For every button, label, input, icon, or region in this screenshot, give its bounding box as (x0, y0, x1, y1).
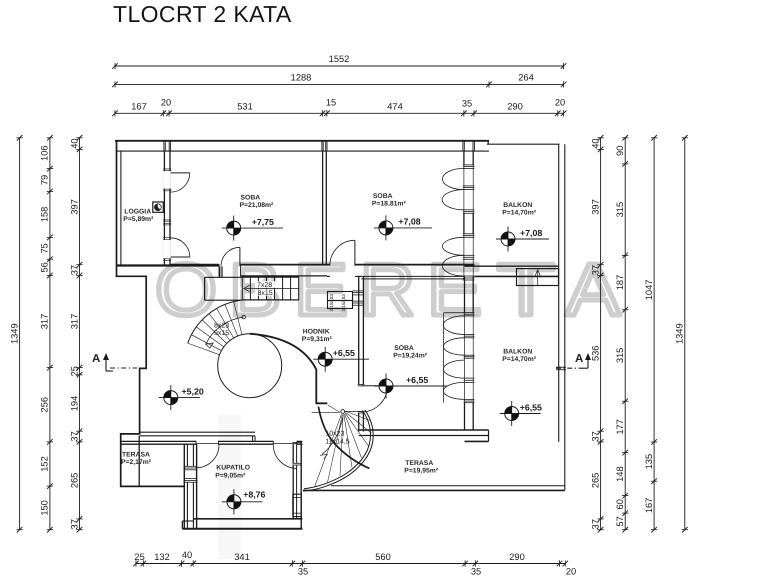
svg-text:+6,55: +6,55 (333, 348, 355, 358)
svg-text:560: 560 (375, 552, 391, 562)
svg-text:1288: 1288 (291, 73, 312, 83)
svg-text:167: 167 (131, 102, 147, 112)
svg-text:A: A (566, 248, 621, 331)
svg-text:290: 290 (509, 552, 525, 562)
svg-text:HODNIK: HODNIK (303, 329, 330, 336)
svg-text:T: T (497, 248, 555, 331)
svg-text:+7,75: +7,75 (252, 217, 274, 227)
svg-text:265: 265 (590, 473, 600, 489)
svg-text:11x14,5: 11x14,5 (325, 439, 349, 446)
svg-text:187: 187 (615, 275, 625, 291)
svg-text:P=19,95m²: P=19,95m² (404, 468, 439, 475)
svg-text:60: 60 (615, 499, 625, 509)
svg-text:3,15: 3,15 (329, 302, 334, 311)
svg-text:290: 290 (507, 102, 523, 112)
svg-text:264: 264 (518, 73, 534, 83)
svg-text:8x15: 8x15 (258, 290, 273, 297)
svg-text:37: 37 (69, 431, 79, 441)
svg-text:P=21,08m²: P=21,08m² (240, 202, 275, 209)
svg-text:341: 341 (234, 552, 250, 562)
svg-text:7x28: 7x28 (257, 282, 272, 289)
svg-text:+8,76: +8,76 (243, 490, 265, 500)
svg-text:25: 25 (69, 366, 79, 376)
svg-text:+7,08: +7,08 (520, 228, 542, 238)
svg-text:20: 20 (161, 98, 171, 108)
svg-text:40: 40 (69, 138, 79, 148)
svg-text:79: 79 (40, 175, 50, 185)
svg-text:75: 75 (40, 243, 50, 253)
svg-text:167: 167 (644, 498, 654, 514)
svg-text:8x23: 8x23 (214, 322, 229, 329)
svg-text:37: 37 (590, 519, 600, 529)
svg-text:474: 474 (387, 102, 403, 112)
svg-text:LOGGIA: LOGGIA (124, 209, 151, 216)
svg-text:20: 20 (566, 567, 576, 577)
svg-text:57: 57 (615, 516, 625, 526)
svg-text:194: 194 (69, 396, 79, 412)
svg-text:KUPATILO: KUPATILO (216, 465, 250, 472)
svg-text:P=9,05m²: P=9,05m² (215, 472, 246, 479)
svg-text:317: 317 (40, 314, 50, 330)
svg-text:BALKON: BALKON (503, 202, 532, 209)
svg-text:10x23: 10x23 (325, 431, 344, 438)
svg-text:256: 256 (40, 397, 50, 413)
svg-text:35: 35 (462, 99, 472, 109)
svg-text:P=9,31m²: P=9,31m² (302, 336, 333, 343)
svg-text:9x15: 9x15 (214, 330, 229, 337)
svg-text:+6,55: +6,55 (520, 402, 542, 412)
svg-text:3,15: 3,15 (341, 302, 346, 311)
svg-text:315: 315 (615, 348, 625, 364)
svg-text:148: 148 (615, 466, 625, 482)
svg-text:1552: 1552 (329, 54, 350, 64)
svg-text:315: 315 (615, 202, 625, 218)
svg-text:132: 132 (154, 552, 170, 562)
svg-text:R: R (360, 248, 415, 331)
svg-text:P=14,70m²: P=14,70m² (502, 356, 537, 363)
svg-text:TERASA: TERASA (122, 452, 150, 459)
svg-text:35: 35 (298, 567, 308, 577)
svg-text:A: A (92, 353, 100, 365)
svg-text:56: 56 (40, 262, 50, 272)
svg-text:20: 20 (555, 98, 565, 108)
svg-text:152: 152 (40, 456, 50, 472)
svg-text:SOBA: SOBA (394, 345, 414, 352)
svg-text:TERASA: TERASA (405, 460, 433, 467)
svg-text:135: 135 (644, 454, 654, 470)
svg-text:397: 397 (69, 199, 79, 215)
svg-text:2,83: 2,83 (329, 294, 334, 303)
svg-text:37: 37 (590, 431, 600, 441)
svg-text:E: E (294, 248, 348, 331)
svg-text:397: 397 (590, 199, 600, 215)
svg-text:317: 317 (69, 314, 79, 330)
svg-text:1349: 1349 (9, 323, 19, 344)
svg-text:90: 90 (615, 146, 625, 156)
svg-text:15: 15 (326, 98, 336, 108)
svg-text:40: 40 (182, 550, 192, 560)
svg-text:35: 35 (471, 567, 481, 577)
svg-text:A: A (575, 353, 583, 365)
svg-text:P=18,81m²: P=18,81m² (372, 201, 407, 208)
svg-text:150: 150 (40, 500, 50, 516)
svg-text:SOBA: SOBA (241, 195, 261, 202)
svg-text:37: 37 (69, 519, 79, 529)
svg-text:+5,20: +5,20 (182, 386, 204, 396)
svg-text:P=2,17m²: P=2,17m² (121, 459, 152, 466)
svg-text:BALKON: BALKON (503, 349, 532, 356)
svg-text:P=19,24m²: P=19,24m² (393, 353, 428, 360)
svg-text:37: 37 (590, 265, 600, 275)
svg-text:TLOCRT 2 KATA: TLOCRT 2 KATA (113, 1, 292, 27)
svg-text:40: 40 (590, 138, 600, 148)
svg-text:177: 177 (615, 419, 625, 435)
svg-text:106: 106 (40, 145, 50, 161)
svg-text:37: 37 (69, 265, 79, 275)
svg-text:25: 25 (134, 552, 144, 562)
svg-text:P=5,89m²: P=5,89m² (123, 216, 154, 223)
svg-text:P=14,70m²: P=14,70m² (502, 210, 537, 217)
svg-text:1047: 1047 (644, 280, 654, 301)
svg-text:1349: 1349 (675, 323, 685, 344)
svg-text:531: 531 (237, 102, 253, 112)
svg-text:265: 265 (69, 473, 79, 489)
svg-text:536: 536 (590, 346, 600, 362)
svg-text:SOBA: SOBA (373, 193, 393, 200)
svg-text:+6,55: +6,55 (406, 375, 428, 385)
svg-text:2,83: 2,83 (341, 294, 346, 303)
svg-text:158: 158 (40, 207, 50, 223)
svg-text:+7,08: +7,08 (398, 217, 420, 227)
